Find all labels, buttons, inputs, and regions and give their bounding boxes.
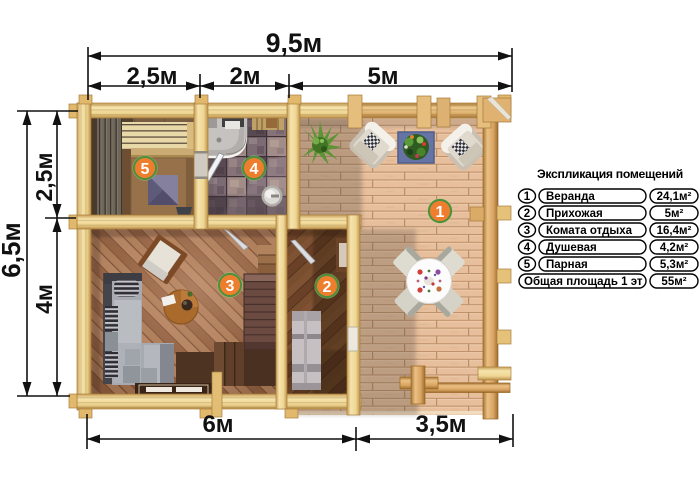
svg-text:55м²: 55м² — [661, 276, 686, 288]
svg-text:6,5м: 6,5м — [0, 222, 26, 277]
svg-text:5,3м²: 5,3м² — [660, 259, 688, 271]
svg-text:Веранда: Веранда — [546, 191, 595, 203]
svg-text:1: 1 — [436, 204, 445, 221]
svg-text:1: 1 — [524, 191, 531, 203]
svg-text:5м²: 5м² — [665, 208, 684, 220]
svg-text:2: 2 — [524, 208, 530, 220]
svg-text:6м: 6м — [202, 411, 233, 438]
svg-text:5: 5 — [141, 161, 150, 178]
svg-text:4м: 4м — [31, 284, 57, 314]
svg-text:2,5м: 2,5м — [31, 153, 57, 202]
svg-text:2: 2 — [323, 279, 332, 296]
svg-text:16,4м²: 16,4м² — [657, 225, 692, 237]
svg-text:Душевая: Душевая — [546, 242, 597, 254]
svg-text:3,5м: 3,5м — [415, 411, 466, 438]
svg-text:3: 3 — [226, 278, 235, 295]
svg-text:Экспликация помещений: Экспликация помещений — [537, 167, 683, 181]
svg-text:5м: 5м — [367, 63, 398, 90]
svg-text:9,5м: 9,5м — [266, 28, 322, 58]
svg-text:4: 4 — [524, 242, 531, 254]
svg-text:Парная: Парная — [546, 259, 588, 271]
svg-text:5: 5 — [524, 259, 531, 271]
svg-text:24,1м²: 24,1м² — [657, 191, 692, 203]
svg-text:3: 3 — [524, 225, 530, 237]
svg-text:Общая площадь 1 эт: Общая площадь 1 эт — [524, 276, 643, 288]
svg-text:Прихожая: Прихожая — [546, 208, 603, 220]
svg-text:2м: 2м — [229, 63, 260, 90]
svg-text:2,5м: 2,5м — [126, 63, 177, 90]
svg-text:Комата отдыха: Комата отдыха — [546, 225, 633, 237]
svg-text:4: 4 — [250, 161, 259, 178]
svg-text:4,2м²: 4,2м² — [660, 242, 688, 254]
